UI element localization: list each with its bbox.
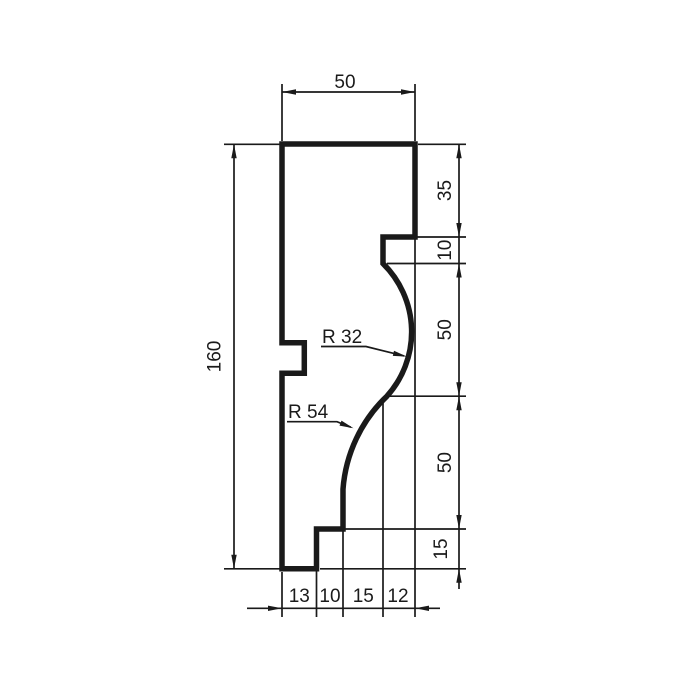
dim-label-10: 10 — [435, 240, 456, 261]
arrowhead-up — [231, 144, 236, 158]
dim-label-total-height: 160 — [205, 341, 226, 373]
dim-label-50-upper: 50 — [435, 319, 456, 340]
arrowhead-down — [456, 515, 461, 529]
dim-label-12: 12 — [387, 586, 408, 607]
arrowhead-leader — [393, 351, 407, 357]
arrowhead-up — [456, 569, 461, 583]
dim-label-13: 13 — [289, 586, 310, 607]
arrowhead-up — [456, 264, 461, 278]
dim-label-15: 15 — [431, 538, 452, 559]
top-width-dimension: 50 — [282, 72, 415, 141]
arrowhead-right — [401, 89, 415, 94]
arrowhead-leader — [340, 421, 354, 429]
radius-callout-r54: R 54 — [287, 402, 354, 428]
arrowhead-up — [456, 396, 461, 410]
bottom-dimension-chain: 13 10 15 12 — [247, 239, 440, 617]
drawing-canvas: 50 160 35 10 50 50 15 — [0, 0, 686, 686]
arrowhead-down — [456, 382, 461, 396]
dim-label-10b: 10 — [319, 586, 340, 607]
arrowhead-down — [456, 223, 461, 237]
radius-label-r32: R 32 — [322, 327, 362, 348]
radius-callout-r32: R 32 — [321, 327, 407, 357]
arrowhead-left — [415, 606, 429, 611]
arrowhead-right — [268, 606, 282, 611]
dim-label-50-lower: 50 — [435, 452, 456, 473]
arrowhead-up — [456, 144, 461, 158]
molding-profile-outline — [282, 144, 415, 569]
total-height-dimension: 160 — [205, 144, 281, 569]
dim-label-35: 35 — [435, 180, 456, 201]
arrowhead-down — [231, 555, 236, 569]
dim-label-15b: 15 — [353, 586, 374, 607]
radius-label-r54: R 54 — [288, 402, 329, 423]
technical-drawing: 50 160 35 10 50 50 15 — [0, 0, 686, 686]
arrowhead-left — [282, 89, 296, 94]
dim-label-top-width: 50 — [334, 72, 355, 93]
